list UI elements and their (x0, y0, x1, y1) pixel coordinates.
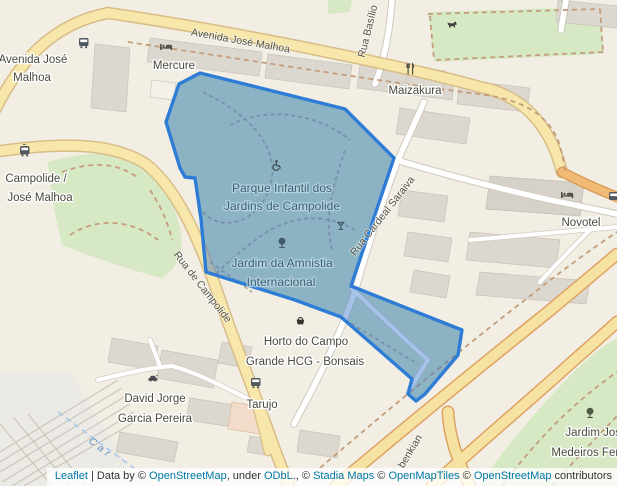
osm-contributors-link[interactable]: OpenStreetMap (474, 470, 552, 482)
label-horto-2: Grande HCG - Bonsais (246, 356, 364, 368)
label-jardim-jose-2: Medeiros Ferr (551, 447, 617, 459)
transit-icon-partial (609, 192, 617, 200)
map-container[interactable]: Avenida José Malhoa Avenida José Malhoa … (0, 0, 617, 486)
label-campolide-station-2: José Malhoa (7, 192, 73, 204)
label-david-2: Garcia Pereira (118, 413, 193, 425)
label-amnistia-1: Jardim da Amnistia (231, 256, 333, 270)
attribution-text: | Data by © (88, 470, 149, 482)
label-mercure: Mercure (153, 60, 195, 72)
label-maizakura: Maizakura (388, 85, 442, 97)
label-park-2: Jardins de Campolide (224, 199, 340, 213)
attribution-text: , under (227, 470, 264, 482)
label-av-malhoa-stop-1: Avenida José (0, 54, 67, 66)
label-tarujo: Tarujo (246, 399, 277, 411)
label-jardim-jose-1: Jardim Jos (565, 427, 617, 439)
attribution-text: contributors (551, 470, 612, 482)
osm-link[interactable]: OpenStreetMap (149, 470, 227, 482)
attribution-text: © (460, 470, 474, 482)
leaflet-link[interactable]: Leaflet (55, 470, 88, 482)
openmaptiles-link[interactable]: OpenMapTiles (388, 470, 459, 482)
label-av-malhoa-stop-2: Malhoa (13, 72, 51, 84)
stadia-maps-link[interactable]: Stadia Maps (313, 470, 374, 482)
label-novotel: Novotel (562, 217, 601, 229)
label-david-1: David Jorge (124, 393, 185, 405)
attribution-bar: Leaflet | Data by © OpenStreetMap, under… (47, 468, 617, 486)
label-campolide-station-1: Campolide / (5, 173, 67, 185)
label-amnistia-2: Internacional (247, 275, 316, 289)
attribution-text: ., © (293, 470, 313, 482)
map-canvas[interactable]: Avenida José Malhoa Avenida José Malhoa … (0, 0, 617, 486)
label-horto-1: Horto do Campo (264, 336, 348, 348)
label-park-1: Parque Infantil dos (232, 181, 332, 195)
odbl-link[interactable]: ODbL (264, 470, 293, 482)
attribution-text: © (374, 470, 388, 482)
